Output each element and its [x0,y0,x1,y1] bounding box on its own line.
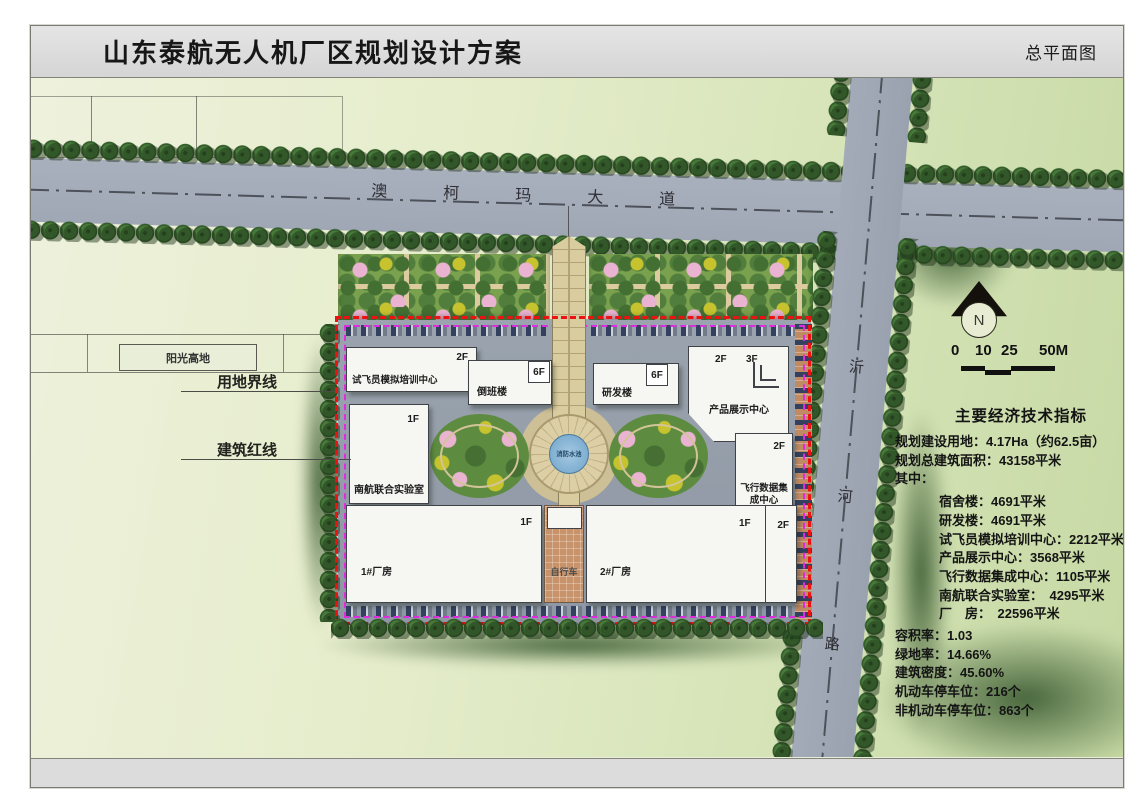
title-bar: 山东泰航无人机厂区规划设计方案 总平面图 [31,26,1123,78]
sheet-footer-strip [31,758,1123,787]
indicator-line: 厂 房： 22596平米 [895,605,1123,624]
indicator-line: 其中： [895,470,1123,489]
economic-indicators-panel: 主要经济技术指标 规划建设用地：4.17Ha（约62.5亩） 规划总建筑面积：4… [895,404,1123,721]
indicators-title: 主要经济技术指标 [895,404,1123,426]
tree-column [906,78,933,144]
leader-line [181,391,338,392]
land-use-boundary-line [335,316,811,625]
scale-tick-10: 10 [975,342,992,359]
scale-segment [985,370,1011,375]
scale-bar: 0 10 25 50M [949,342,1067,378]
indicator-line: 产品展示中心：3568平米 [895,549,1123,568]
site-plan-canvas: 澳柯玛大道 沂 河 路 [31,78,1123,757]
indicator-line: 宿舍楼：4691平米 [895,493,1123,512]
north-label: N [974,312,985,329]
land-use-boundary-annotation: 用地界线 [217,371,277,392]
indicator-line: 飞行数据集成中心：1105平米 [895,568,1123,587]
yihe-road-char-3: 路 [824,633,841,655]
sunshine-highland-label: 阳光高地 [119,344,257,371]
tree-row [331,618,823,639]
field-plot-line [283,334,284,372]
indicator-line: 规划建设用地：4.17Ha（约62.5亩） [895,433,1123,452]
indicator-line: 机动车停车位：216个 [895,683,1123,702]
north-arrow: N [951,281,1007,343]
building-red-line-annotation: 建筑红线 [217,439,277,460]
orchard-garden-right [589,254,813,320]
north-arrow-circle: N [961,302,997,338]
yihe-road-char-1: 沂 [848,356,865,378]
tree-column [826,78,853,136]
orchard-garden-left [338,254,550,320]
indicator-line: 南航联合实验室： 4295平米 [895,587,1123,606]
indicator-line: 非机动车停车位：863个 [895,702,1123,721]
indicator-line: 规划总建筑面积：43158平米 [895,452,1123,471]
scale-tick-0: 0 [951,342,959,359]
scale-segment [1011,366,1055,371]
indicator-line: 绿地率：14.66% [895,646,1123,665]
aokema-avenue-label: 澳柯玛大道 [371,177,732,211]
indicator-line: 研发楼：4691平米 [895,512,1123,531]
indicator-line: 建筑密度：45.60% [895,664,1123,683]
field-plot-line [87,334,88,372]
field-plot-line [31,334,338,335]
indicator-line: 容积率：1.03 [895,627,1123,646]
drawing-title: 总平面图 [1025,39,1097,64]
field-plot-line [31,372,338,373]
scale-tick-25: 25 [1001,342,1018,359]
indicator-line: 试飞员模拟培训中心：2212平米 [895,531,1123,550]
yihe-road-char-2: 河 [837,485,854,507]
scale-segment [961,366,985,371]
scale-tick-50: 50M [1039,342,1068,359]
aokema-avenue-road: 澳柯玛大道 [31,158,1123,253]
project-title: 山东泰航无人机厂区规划设计方案 [103,33,523,70]
drawing-sheet: 山东泰航无人机厂区规划设计方案 总平面图 澳柯玛大道 沂 河 [30,25,1124,788]
leader-line [181,459,351,460]
entrance-axis-pole [568,206,569,238]
